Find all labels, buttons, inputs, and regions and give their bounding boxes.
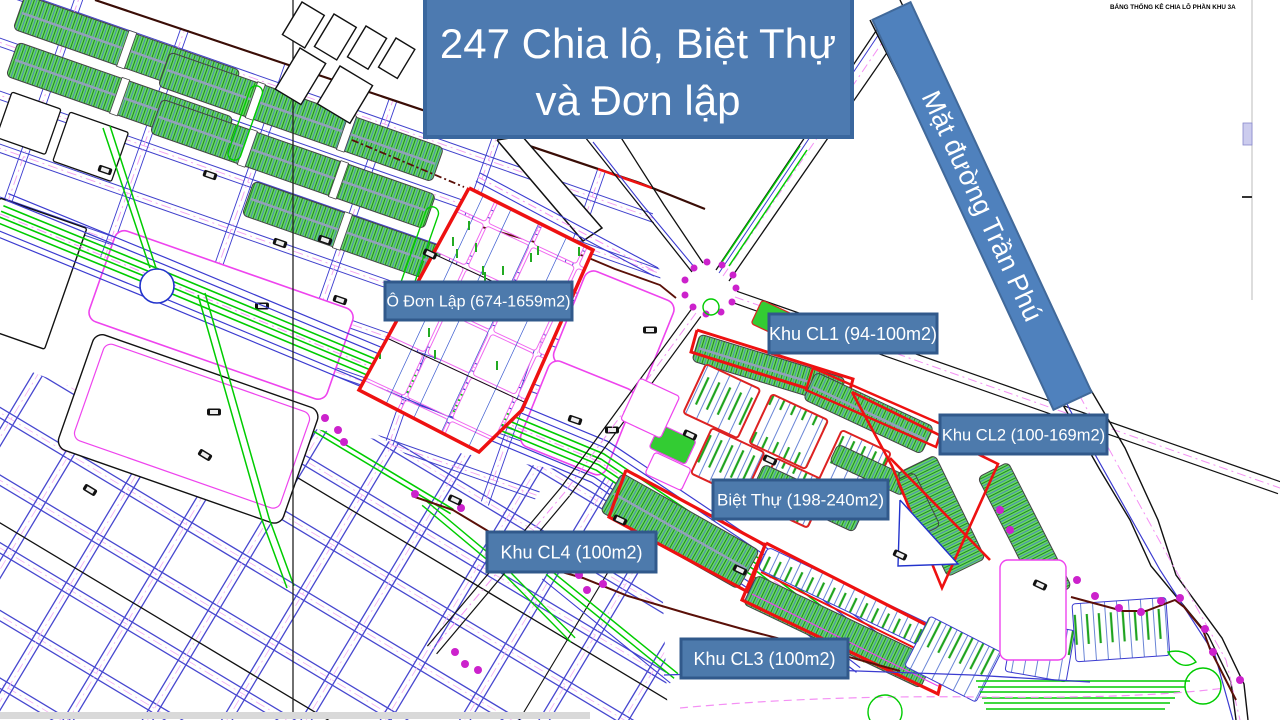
svg-text:và Đơn lập: và Đơn lập [536,77,741,124]
svg-text:Khu CL2 (100-169m2): Khu CL2 (100-169m2) [942,426,1105,444]
svg-text:Khu CL1 (94-100m2): Khu CL1 (94-100m2) [769,324,937,344]
svg-text:Khu CL3 (100m2): Khu CL3 (100m2) [693,649,835,669]
svg-text:247 Chia lô, Biệt Thự: 247 Chia lô, Biệt Thự [440,20,836,67]
svg-text:Ô Đơn Lập (674-1659m2): Ô Đơn Lập (674-1659m2) [387,292,571,311]
svg-text:Biệt Thự (198-240m2): Biệt Thự (198-240m2) [717,490,884,509]
svg-text:Khu CL4 (100m2): Khu CL4 (100m2) [500,542,642,562]
